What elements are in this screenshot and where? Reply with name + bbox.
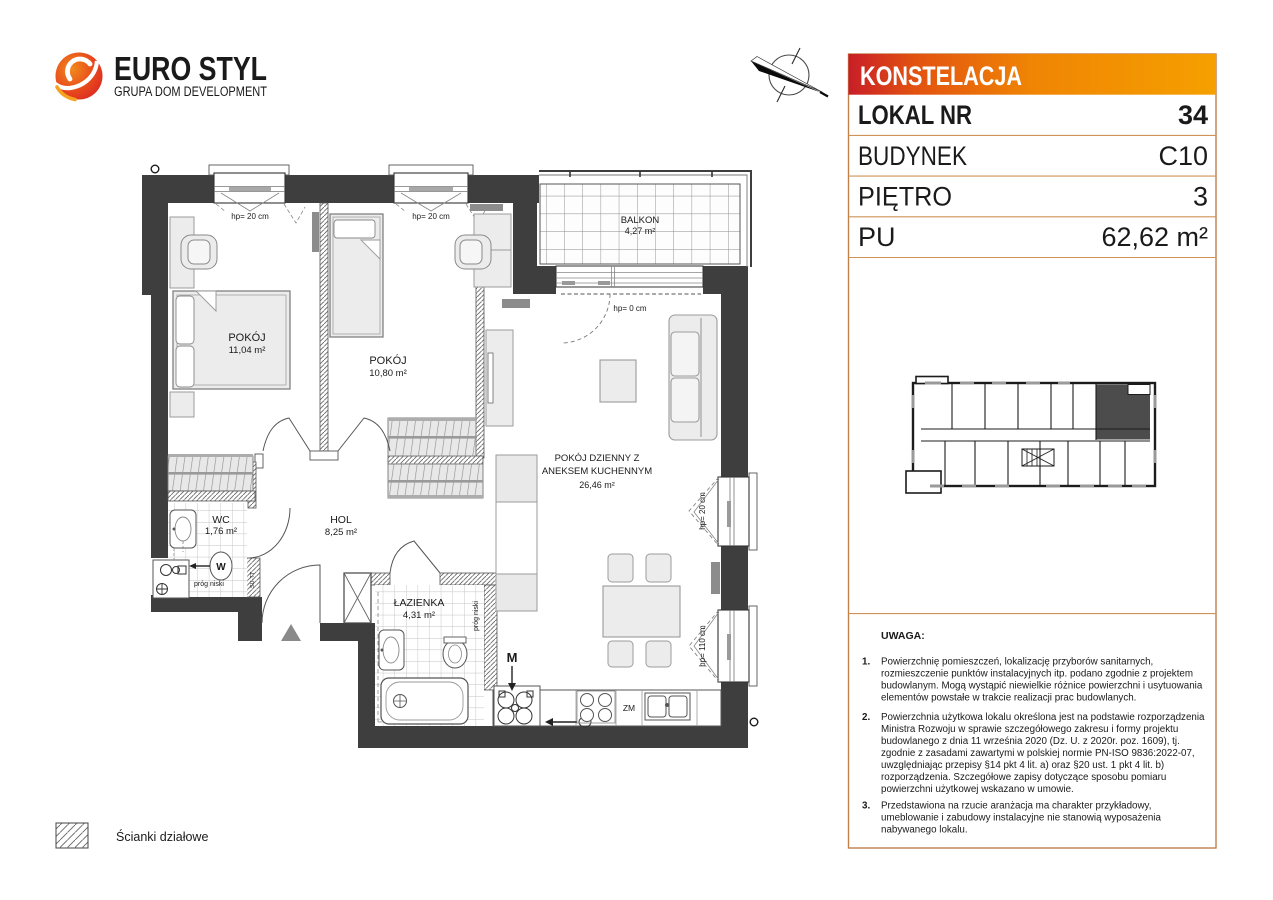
svg-text:3.: 3. [862,800,870,811]
svg-text:1,76 m²: 1,76 m² [205,526,237,537]
svg-text:elementów powstałe w trakcie r: elementów powstałe w trakcie realizacji … [881,693,1136,704]
svg-text:POKÓJ: POKÓJ [369,354,406,367]
svg-text:W: W [216,562,226,573]
svg-text:ŁAZIENKA: ŁAZIENKA [394,597,445,609]
svg-text:2.: 2. [862,712,870,723]
svg-text:62,62 m²: 62,62 m² [1101,222,1208,252]
svg-text:ANEKSEM KUCHENNYM: ANEKSEM KUCHENNYM [542,466,652,477]
svg-text:PIĘTRO: PIĘTRO [858,182,952,212]
svg-text:SU-TT: SU-TT [250,571,256,588]
svg-text:hp= 20 cm: hp= 20 cm [698,492,707,530]
svg-text:UWAGA:: UWAGA: [881,630,925,642]
svg-text:BUDYNEK: BUDYNEK [858,141,967,171]
svg-text:GRUPA DOM DEVELOPMENT: GRUPA DOM DEVELOPMENT [114,84,267,99]
svg-text:zgodnie z zasadami zawartymi w: zgodnie z zasadami zawartymi w polskiej … [881,748,1195,759]
svg-text:11,04 m²: 11,04 m² [229,345,266,356]
svg-text:Ścianki działowe: Ścianki działowe [116,829,208,844]
svg-text:4,31 m²: 4,31 m² [403,610,435,621]
svg-text:1.: 1. [862,657,870,668]
svg-text:budowlanego z dnia 11 września: budowlanego z dnia 11 września 2020 (Dz.… [881,736,1180,747]
svg-text:BALKON: BALKON [621,215,660,226]
svg-text:hp= 0 cm: hp= 0 cm [613,304,646,313]
svg-text:hp= 20 cm: hp= 20 cm [412,212,450,221]
svg-text:4,27 m²: 4,27 m² [625,226,656,236]
svg-text:M: M [507,650,518,665]
svg-text:umeblowanie i zabudowy instala: umeblowanie i zabudowy instalacyjne nie … [881,812,1161,823]
svg-text:rozporządzenia. Szczegółowe za: rozporządzenia. Szczegółowe zapisy dotyc… [881,772,1166,783]
svg-text:Ministra Rozwoju w sprawie szc: Ministra Rozwoju w sprawie szczegółowego… [881,724,1178,735]
svg-text:C10: C10 [1158,141,1208,171]
svg-text:3: 3 [1193,182,1208,212]
svg-text:hp= 20 cm: hp= 20 cm [231,212,269,221]
svg-text:WC: WC [212,514,230,526]
svg-text:hp= 110 cm: hp= 110 cm [698,625,707,667]
svg-text:uwzględniając przepisy §14 pkt: uwzględniając przepisy §14 pkt 4 lit. a)… [881,760,1164,771]
svg-text:8,25 m²: 8,25 m² [325,527,357,538]
svg-text:ZM: ZM [623,703,635,713]
svg-text:PU: PU [858,222,896,252]
svg-text:26,46 m²: 26,46 m² [579,480,615,490]
svg-text:POKÓJ DZIENNY Z: POKÓJ DZIENNY Z [555,453,640,464]
svg-text:POKÓJ: POKÓJ [228,331,265,344]
svg-text:powierzchni użytkowej wskazano: powierzchni użytkowej wskazano w umowie. [881,784,1074,795]
svg-text:34: 34 [1178,100,1208,130]
svg-text:Powierzchnię pomieszczeń, loka: Powierzchnię pomieszczeń, lokalizację pr… [881,657,1153,668]
svg-text:10,80 m²: 10,80 m² [369,368,407,379]
svg-text:rozmieszczenie punktów instala: rozmieszczenie punktów instalacyjnych it… [881,669,1193,680]
svg-text:KONSTELACJA: KONSTELACJA [860,61,1022,91]
svg-text:EURO STYL: EURO STYL [114,50,267,87]
svg-text:próg niski: próg niski [194,581,224,588]
svg-text:nabywanego lokalu.: nabywanego lokalu. [881,824,968,835]
svg-text:Powierzchnia użytkowa lokalu o: Powierzchnia użytkowa lokalu określona j… [881,712,1205,723]
svg-text:Przedstawiona na rzucie aranża: Przedstawiona na rzucie aranżacja ma cha… [881,800,1151,811]
svg-text:próg niski: próg niski [473,601,480,631]
svg-text:LOKAL NR: LOKAL NR [858,100,972,130]
svg-text:budowlanym. Mogą wystąpić niew: budowlanym. Mogą wystąpić niewielkie róż… [881,681,1203,692]
svg-text:HOL: HOL [330,514,352,526]
